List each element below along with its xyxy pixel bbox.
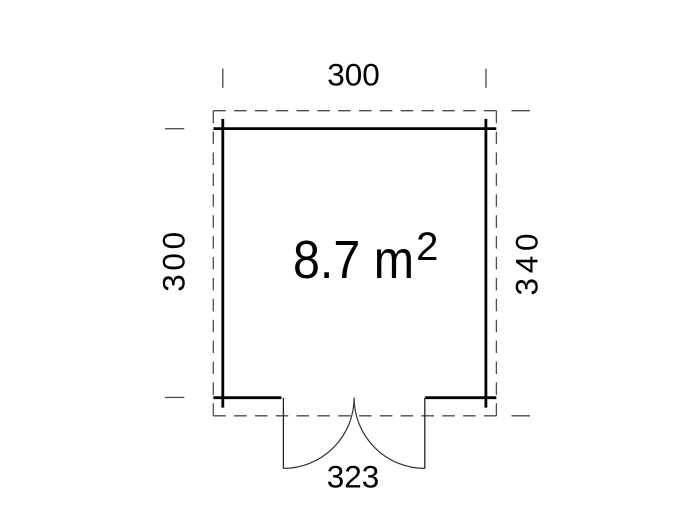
svg-text:300: 300: [327, 56, 380, 92]
svg-text:323: 323: [327, 458, 380, 494]
svg-text:340: 340: [508, 234, 544, 296]
svg-text:2: 2: [416, 225, 438, 269]
svg-text:300: 300: [155, 232, 191, 292]
svg-text:8.7 m: 8.7 m: [293, 230, 414, 290]
